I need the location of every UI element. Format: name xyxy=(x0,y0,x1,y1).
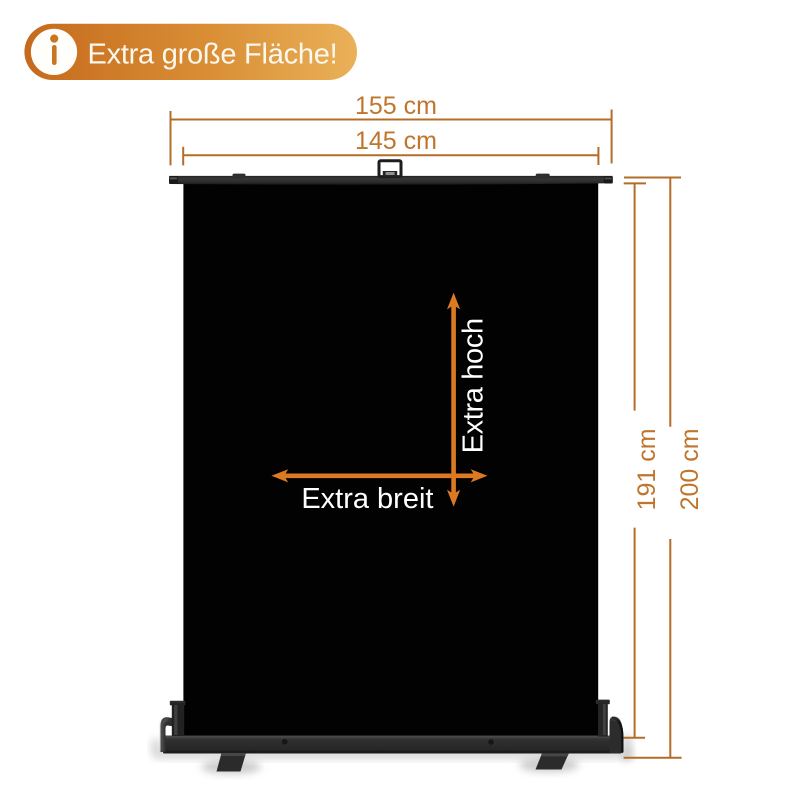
svg-text:191 cm: 191 cm xyxy=(633,428,661,510)
svg-text:200 cm: 200 cm xyxy=(676,428,704,510)
svg-text:Extra breit: Extra breit xyxy=(301,483,433,515)
svg-text:145 cm: 145 cm xyxy=(355,127,437,155)
svg-text:Extra große Fläche!: Extra große Fläche! xyxy=(88,38,338,70)
svg-text:Extra hoch: Extra hoch xyxy=(458,318,490,453)
svg-text:155 cm: 155 cm xyxy=(355,92,437,120)
